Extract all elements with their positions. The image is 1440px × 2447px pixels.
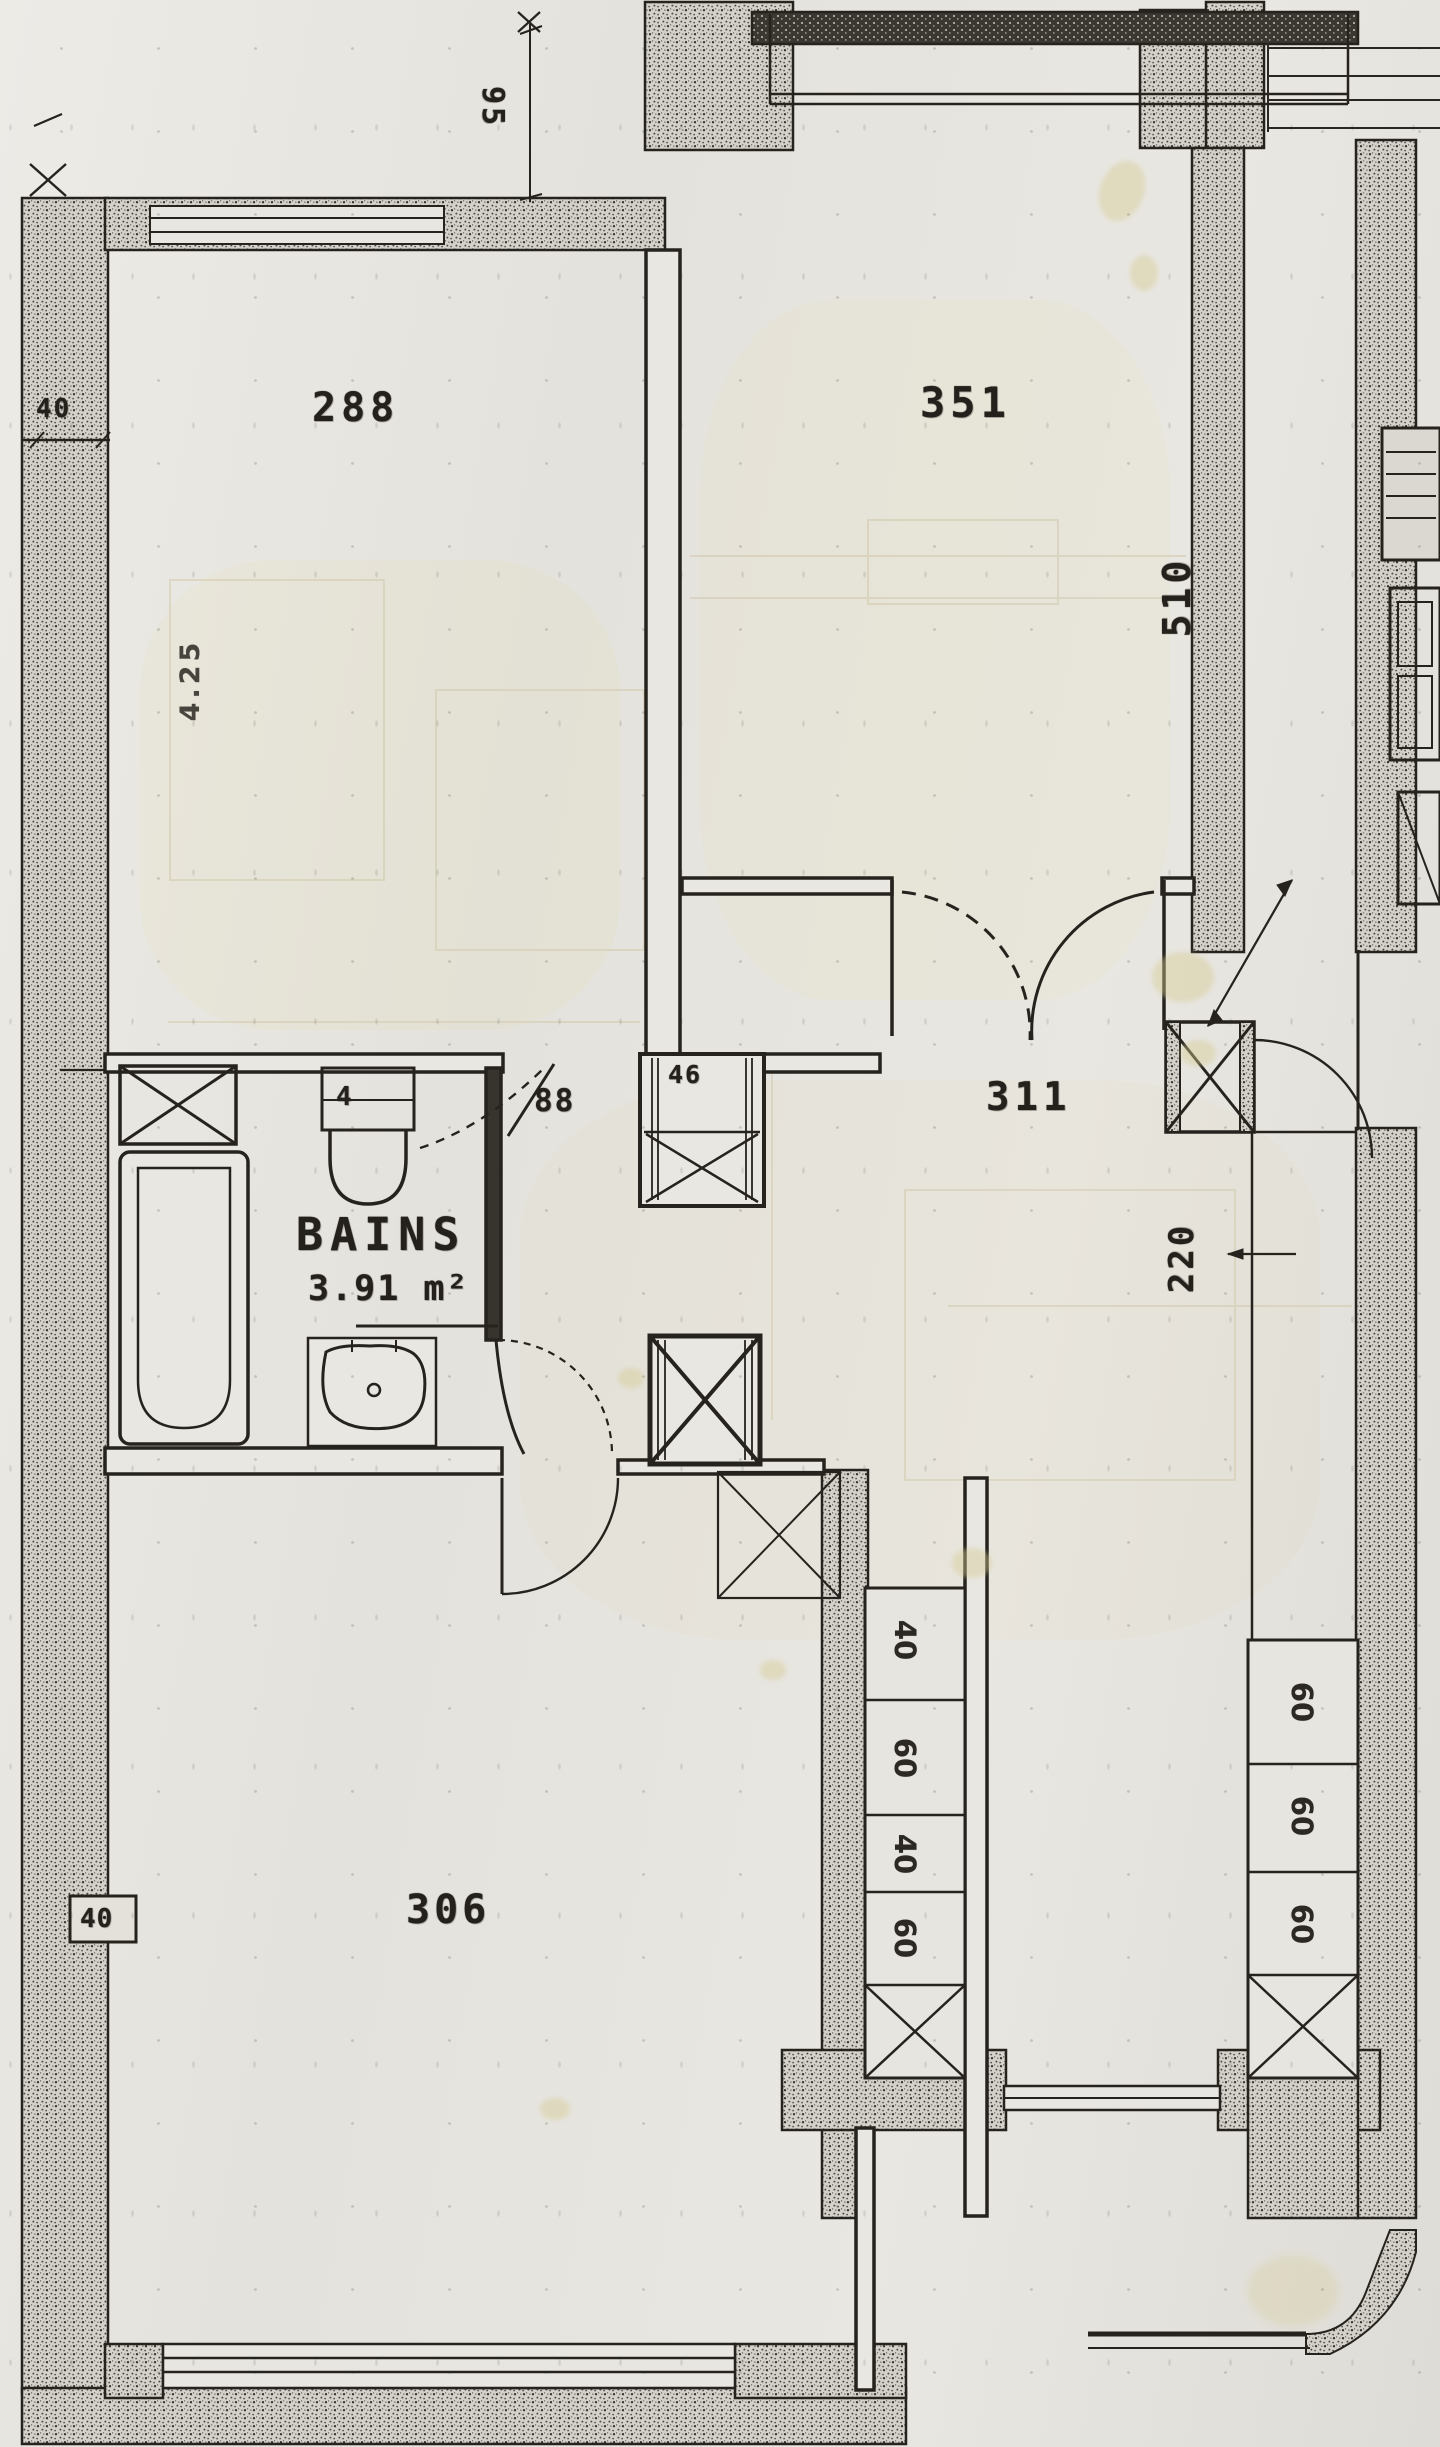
toilet-4-label: 4 — [336, 1084, 352, 1110]
closet-right-cell-label: 60 — [1286, 1894, 1318, 1954]
bathtub — [120, 1152, 248, 1444]
window-room-306 — [163, 2344, 735, 2388]
dim-88-label: 88 — [534, 1086, 575, 1117]
hall-311-label: 311 — [986, 1078, 1071, 1117]
floor-plan-scan: 288 351 311 306 BAINS 3.91 m² 95 40 4.25… — [0, 0, 1440, 2447]
duct-shafts — [120, 1022, 1254, 1598]
dim-40-top-label: 40 — [36, 396, 71, 422]
closet-right-cell-label: 60 — [1286, 1786, 1318, 1846]
closet-center-cell-label: 60 — [889, 1908, 921, 1968]
closet-center-cell-label: 60 — [889, 1728, 921, 1788]
adjacent-unit-window — [1268, 44, 1440, 132]
dim-220-label: 220 — [1162, 1198, 1202, 1318]
closet-center-cell-label: 40 — [889, 1610, 921, 1670]
dim-510-label: 510 — [1156, 542, 1198, 652]
room-351-label: 351 — [920, 382, 1011, 424]
dim-95-label: 95 — [475, 71, 509, 143]
window-room-288 — [150, 206, 444, 244]
dim-40-left-label: 40 — [80, 1906, 113, 1932]
room-306-label: 306 — [406, 1890, 490, 1930]
sink — [308, 1338, 436, 1446]
bathroom-area-label: 3.91 m² — [308, 1272, 470, 1307]
closet-right-cell-label: 60 — [1286, 1672, 1318, 1732]
duct-46-label: 46 — [668, 1062, 702, 1087]
dim-425-label: 4.25 — [172, 614, 208, 746]
room-288-label: 288 — [312, 388, 399, 428]
closet-center-cell-label: 40 — [889, 1824, 921, 1884]
plan-linework — [0, 0, 1440, 2447]
bathroom-name-label: BAINS — [296, 1212, 466, 1257]
